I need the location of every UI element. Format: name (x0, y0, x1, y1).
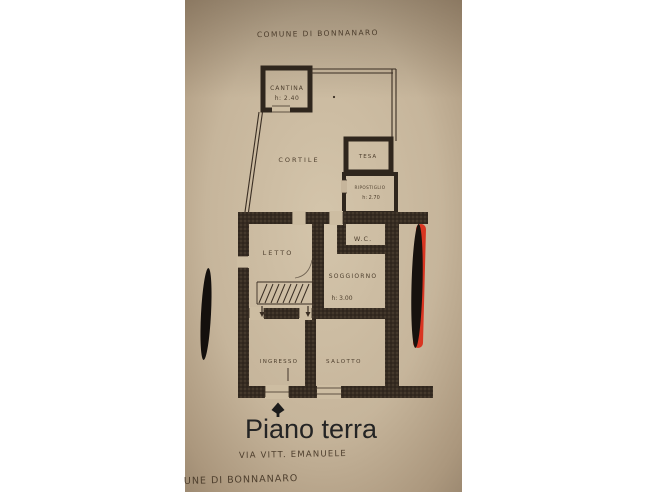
label-ripostiglio-h: h: 2.70 (362, 195, 380, 201)
label-cortile: CORTILE (278, 156, 319, 164)
caption-title: Piano terra (245, 414, 378, 444)
label-salotto: SALOTTO (326, 359, 362, 365)
caption-street: VIA VITT. EMANUELE (239, 449, 347, 461)
screenshot-stage: COMUNE DI BONNANARO (0, 0, 648, 492)
ink-speck (333, 96, 335, 98)
label-soggiorno-h: h: 3.00 (331, 295, 352, 302)
label-tesa: TESA (358, 154, 377, 160)
label-ingresso: INGRESSO (260, 359, 298, 365)
floor-plan-photo: COMUNE DI BONNANARO (0, 0, 648, 492)
label-cantina-h: h: 2.40 (275, 95, 300, 102)
label-soggiorno: SOGGIORNO (329, 273, 378, 280)
label-letto: LETTO (263, 249, 294, 257)
label-cantina: CANTINA (270, 85, 304, 92)
label-ripostiglio: RIPOSTIGLIO (355, 185, 386, 190)
label-wc: W.C. (354, 235, 372, 243)
